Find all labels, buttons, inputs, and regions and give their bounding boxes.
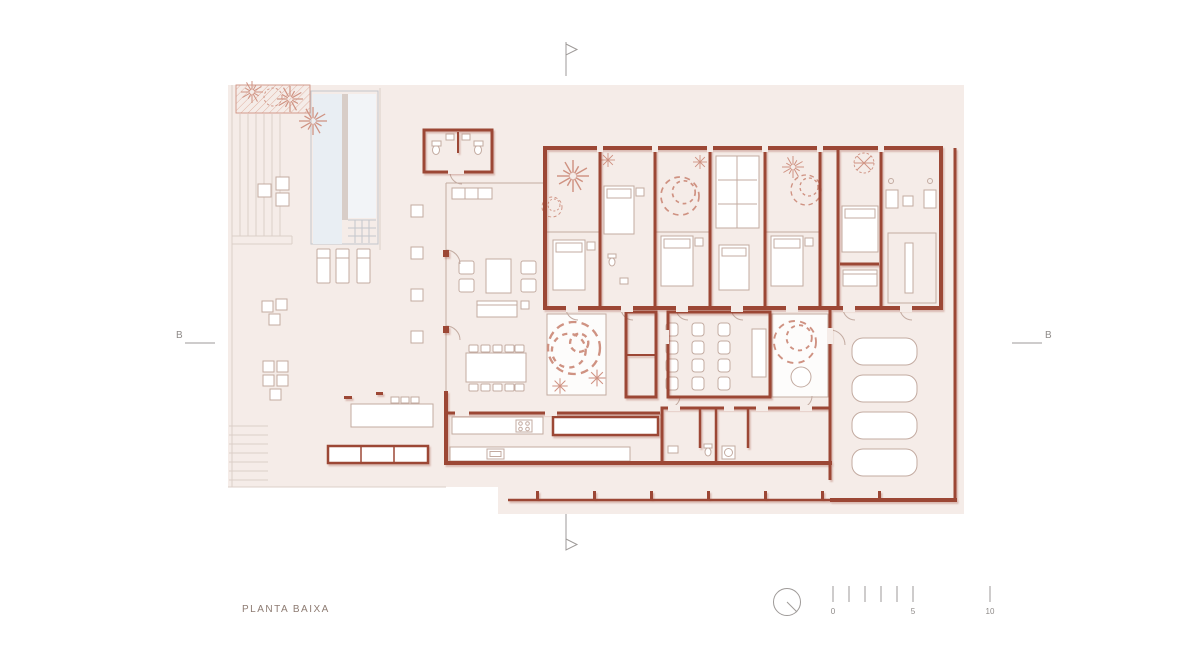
scale-label-0: 0 xyxy=(831,607,836,616)
garden-stone xyxy=(791,367,811,387)
pool-lane xyxy=(313,94,342,244)
drawing-title: PLANTA BAIXA xyxy=(242,604,330,615)
north-indicator-icon xyxy=(774,589,801,616)
pool-loungers xyxy=(317,249,370,283)
coffee-table xyxy=(486,259,511,293)
kitchen-counter xyxy=(450,447,630,461)
architectural-sheet: B B 0 5 10 PLANTA BAIXA xyxy=(0,0,1200,652)
section-label: B xyxy=(176,330,183,341)
pool-lane xyxy=(348,94,376,218)
pennant-flag-icon xyxy=(566,44,577,55)
section-marker-b-right: B xyxy=(1012,330,1052,343)
barbecue-table xyxy=(351,404,433,427)
scale-label-10: 10 xyxy=(986,607,995,616)
scale-label-5: 5 xyxy=(911,607,916,616)
armchair xyxy=(521,279,536,292)
scale-bar: 0 5 10 xyxy=(831,586,995,616)
pantry-walls xyxy=(553,417,658,435)
floor-plan-drawing: B B 0 5 10 PLANTA BAIXA xyxy=(0,0,1200,652)
parking-space xyxy=(852,375,917,402)
bbq-cabinets xyxy=(328,446,428,463)
section-marker-a-top xyxy=(566,42,577,76)
section-label: B xyxy=(1045,330,1052,341)
parking-space xyxy=(852,338,917,365)
armchair xyxy=(521,261,536,274)
dining-table xyxy=(466,353,526,382)
section-marker-a-bottom xyxy=(566,514,577,550)
parking-space xyxy=(852,449,917,476)
section-marker-b-left: B xyxy=(176,330,215,343)
armchair xyxy=(886,190,898,208)
armchair xyxy=(459,261,474,274)
armchair xyxy=(924,190,936,208)
washing-machine xyxy=(722,446,735,459)
armchair xyxy=(459,279,474,292)
pennant-flag-icon xyxy=(566,539,577,550)
sofa xyxy=(477,301,517,317)
parking-space xyxy=(852,412,917,439)
sofa xyxy=(843,270,877,286)
sideboard xyxy=(452,188,492,199)
